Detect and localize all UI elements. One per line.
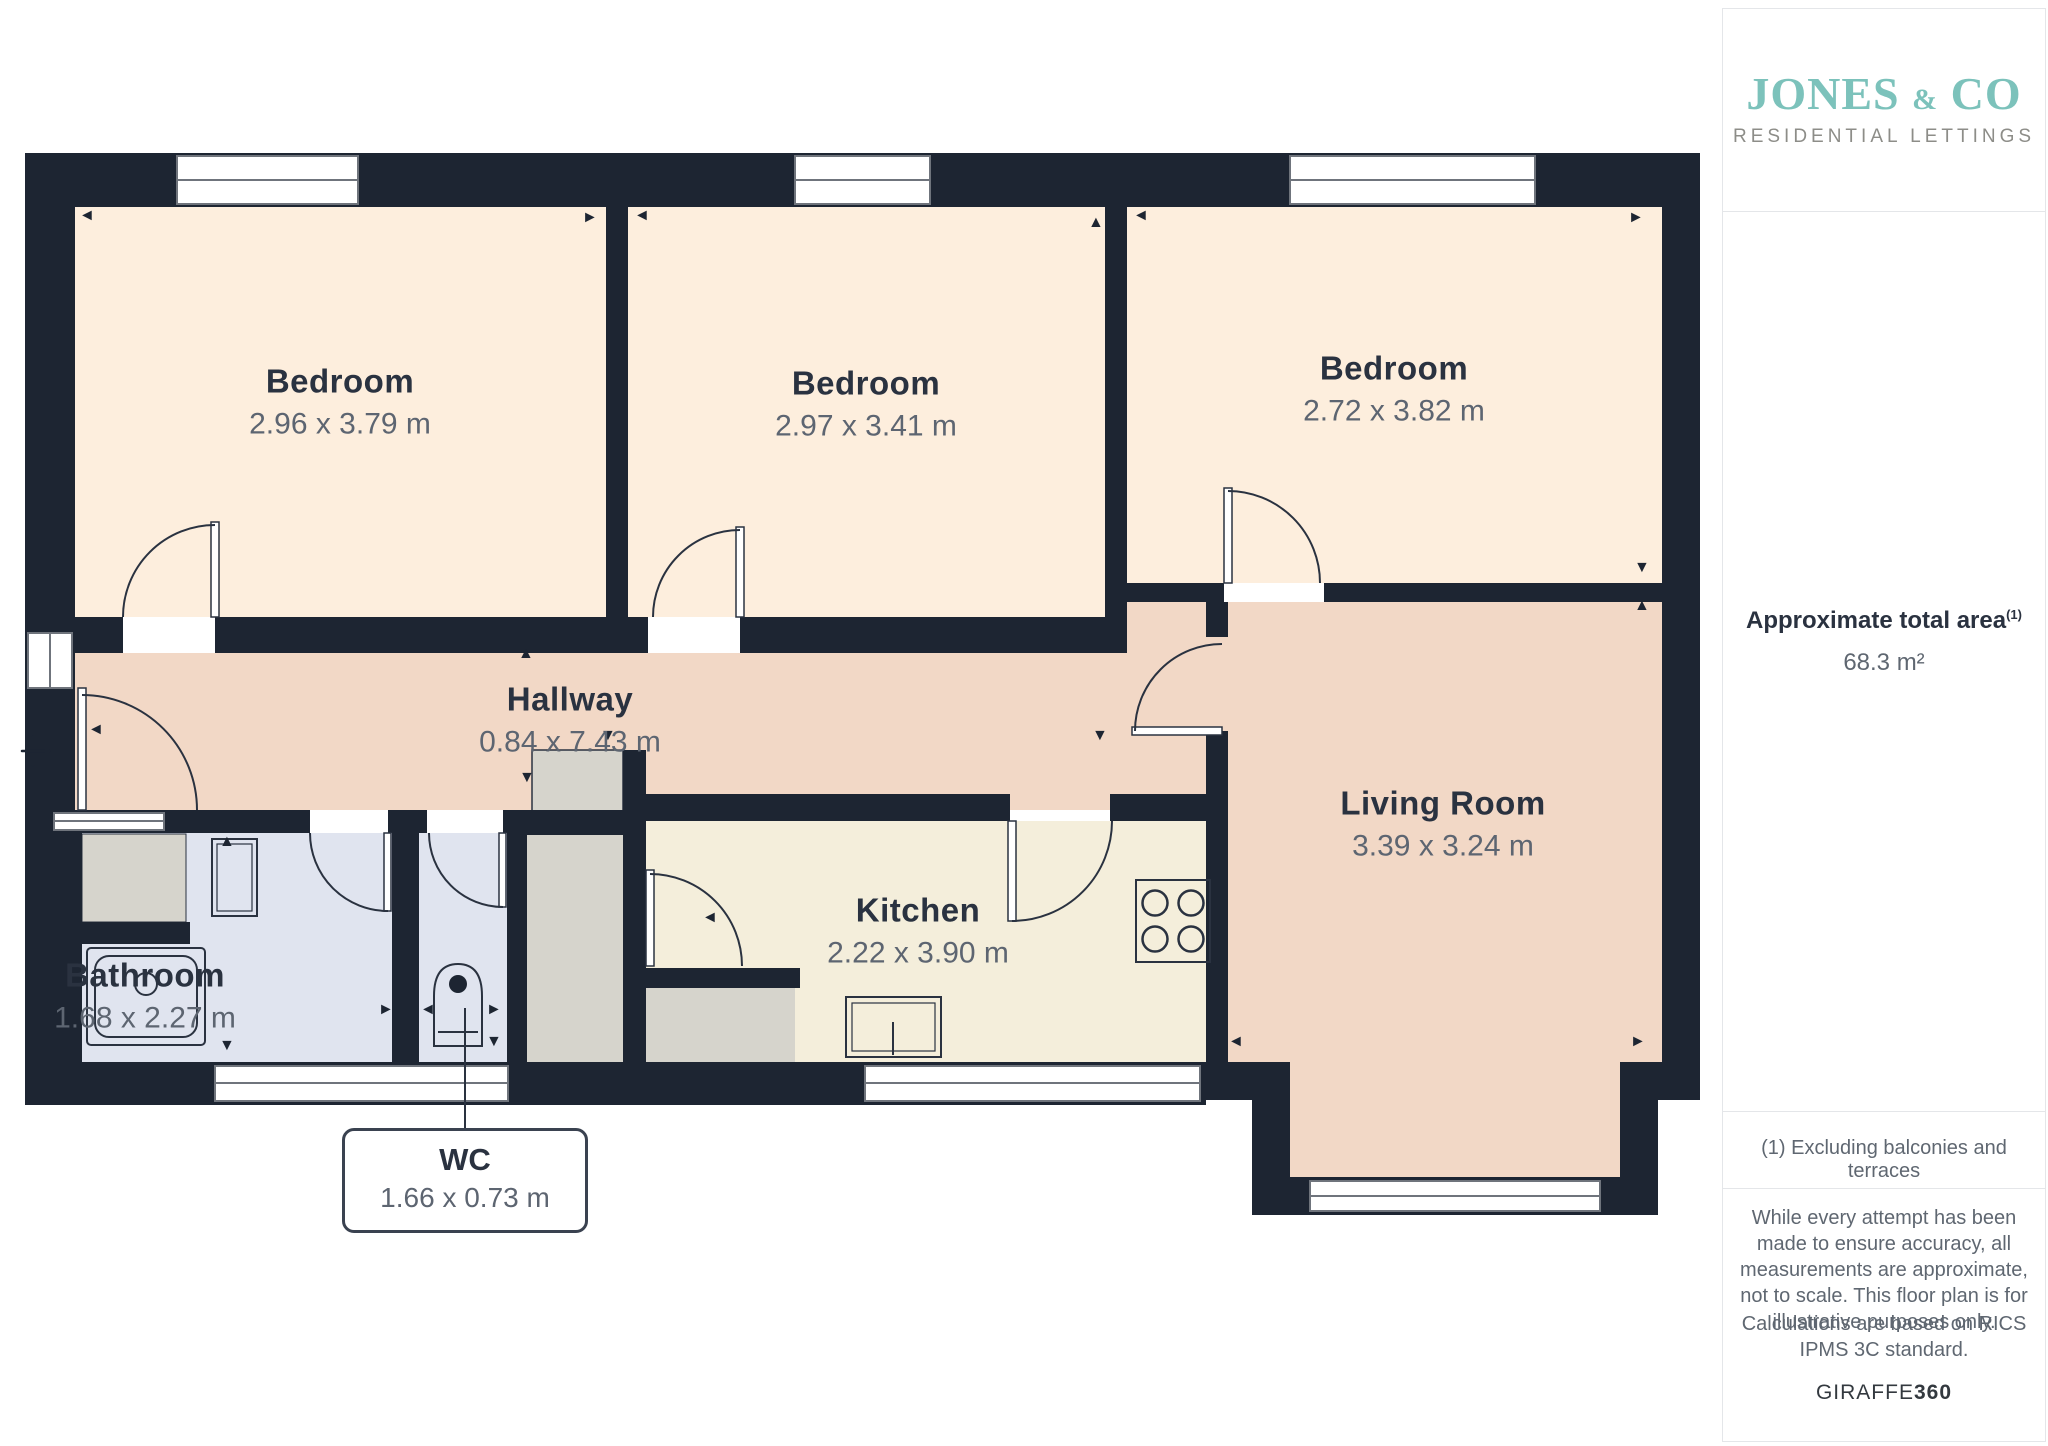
agency-logo: JONES & CO RESIDENTIAL LETTINGS xyxy=(1723,67,2045,148)
wall-segment xyxy=(623,750,646,1062)
room-dimensions: 0.84 x 7.43 m xyxy=(479,726,661,760)
room-dimensions: 2.96 x 3.79 m xyxy=(249,408,431,442)
window-bedroom2 xyxy=(795,156,930,204)
room-dimensions: 2.97 x 3.41 m xyxy=(775,410,957,444)
wall-segment xyxy=(75,617,123,653)
logo-word1: JONES xyxy=(1746,68,1899,119)
hall-cupboard xyxy=(532,750,623,814)
room-name: Bedroom xyxy=(775,365,957,403)
window-hall-left xyxy=(28,633,72,688)
bay-floor xyxy=(1290,1062,1620,1177)
wall-segment xyxy=(1206,1062,1290,1100)
wall-segment xyxy=(606,207,628,653)
wall-segment xyxy=(1105,207,1127,653)
dimension-arrow-icon: ▼ xyxy=(486,1034,502,1050)
giraffe-360-text: 360 xyxy=(1914,1381,1952,1404)
room-label-bedroom-2: Bedroom 2.97 x 3.41 m xyxy=(775,365,957,444)
total-area-value: 68.3 m² xyxy=(1723,649,2045,677)
room-dimensions: 3.39 x 3.24 m xyxy=(1340,830,1545,864)
giraffe360-brand: GIRAFFE360 xyxy=(1723,1381,2045,1405)
standard-text: Calculations are based on RICS IPMS 3C s… xyxy=(1738,1311,2030,1363)
giraffe-text: GIRAFFE xyxy=(1816,1381,1914,1404)
room-dimensions: 2.72 x 3.82 m xyxy=(1303,395,1485,429)
wall-segment xyxy=(646,794,1010,821)
wall-segment xyxy=(1110,794,1206,821)
wall-segment xyxy=(1127,583,1224,602)
room-label-wc-callout: WC 1.66 x 0.73 m xyxy=(342,1128,588,1233)
dimension-arrow-icon: ▼ xyxy=(1634,560,1650,576)
dimension-arrow-icon: ▲ xyxy=(1088,215,1104,231)
glazed-strip-hall xyxy=(54,813,164,830)
room-name: WC xyxy=(345,1142,585,1178)
room-name: Living Room xyxy=(1340,785,1545,823)
wall-segment xyxy=(388,810,427,833)
divider xyxy=(1723,1111,2045,1112)
room-name: Hallway xyxy=(479,681,661,719)
room-name: Bedroom xyxy=(249,363,431,401)
window-bedroom1 xyxy=(177,156,358,204)
wall-segment xyxy=(640,968,800,988)
room-name: Bedroom xyxy=(1303,350,1485,388)
total-area-block: Approximate total area(1) 68.3 m² xyxy=(1723,607,2045,677)
total-area-label: Approximate total area(1) xyxy=(1723,607,2045,635)
room-label-bathroom: Bathroom 1.68 x 2.27 m xyxy=(54,957,236,1036)
dimension-arrow-icon: ► xyxy=(1630,1034,1646,1050)
wall-segment xyxy=(1324,583,1662,602)
dimension-arrow-icon: ◄ xyxy=(1228,1034,1244,1050)
logo-ampersand: & xyxy=(1912,83,1938,116)
room-label-kitchen: Kitchen 2.22 x 3.90 m xyxy=(827,892,1009,971)
room-name: Kitchen xyxy=(827,892,1009,930)
wc-floor xyxy=(419,833,507,1062)
room-label-living-room: Living Room 3.39 x 3.24 m xyxy=(1340,785,1545,864)
room-label-bedroom-1: Bedroom 2.96 x 3.79 m xyxy=(249,363,431,442)
dimension-arrow-icon: ► xyxy=(582,210,598,226)
divider xyxy=(1723,1188,2045,1189)
dimension-arrow-icon: ▲ xyxy=(219,834,235,850)
window-bay xyxy=(1310,1181,1600,1211)
wall-segment xyxy=(527,814,646,835)
agency-logo-subtitle: RESIDENTIAL LETTINGS xyxy=(1723,126,2045,148)
dimension-arrow-icon: ▲ xyxy=(1634,598,1650,614)
window-kitchen xyxy=(865,1066,1200,1101)
dimension-arrow-icon: ◄ xyxy=(420,1002,436,1018)
floorplan-page: Bedroom 2.96 x 3.79 m Bedroom 2.97 x 3.4… xyxy=(0,0,2048,1446)
dimension-arrow-icon: ▲ xyxy=(518,646,534,662)
wall-segment xyxy=(392,833,419,1062)
wall-segment xyxy=(740,617,1105,653)
wall-segment xyxy=(1206,602,1228,637)
logo-word2: CO xyxy=(1951,68,2022,119)
agency-logo-wordmark: JONES & CO xyxy=(1723,67,2045,120)
bathroom-cupboard xyxy=(82,834,186,922)
wall-segment xyxy=(1620,1062,1700,1100)
dimension-arrow-icon: ▼ xyxy=(219,1038,235,1054)
dimension-arrow-icon: ► xyxy=(1628,210,1644,226)
divider xyxy=(1723,211,2045,212)
wall-segment xyxy=(628,617,648,653)
wall-segment xyxy=(507,833,527,1062)
room-label-bedroom-3: Bedroom 2.72 x 3.82 m xyxy=(1303,350,1485,429)
dimension-arrow-icon: ▼ xyxy=(519,770,535,786)
wall-segment xyxy=(25,153,75,833)
window-bedroom3 xyxy=(1290,156,1535,204)
dimension-arrow-icon: ► xyxy=(378,1002,394,1018)
kitchen-cupboard xyxy=(646,988,795,1062)
dimension-arrow-icon: ◄ xyxy=(1133,208,1149,224)
area-footnote: (1) Excluding balconies and terraces xyxy=(1723,1137,2045,1183)
dimension-arrow-icon: ▼ xyxy=(1092,728,1108,744)
room-dimensions: 2.22 x 3.90 m xyxy=(827,937,1009,971)
room-dimensions: 1.68 x 2.27 m xyxy=(54,1002,236,1036)
dimension-arrow-icon: ◄ xyxy=(79,208,95,224)
room-dimensions: 1.66 x 0.73 m xyxy=(345,1182,585,1214)
dimension-arrow-icon: ◄ xyxy=(702,910,718,926)
dimension-arrow-icon: ◄ xyxy=(88,722,104,738)
total-area-text: Approximate total area xyxy=(1746,607,2006,634)
wall-segment xyxy=(215,617,606,653)
dimension-arrow-icon: ► xyxy=(486,1002,502,1018)
wall-segment xyxy=(1662,153,1700,1100)
room-name: Bathroom xyxy=(54,957,236,995)
room-label-hallway: Hallway 0.84 x 7.43 m xyxy=(479,681,661,760)
wall-segment xyxy=(75,922,190,944)
dimension-arrow-icon: ◄ xyxy=(634,208,650,224)
info-panel: JONES & CO RESIDENTIAL LETTINGS Approxim… xyxy=(1722,8,2046,1442)
footnote-reference: (1) xyxy=(2006,607,2022,622)
